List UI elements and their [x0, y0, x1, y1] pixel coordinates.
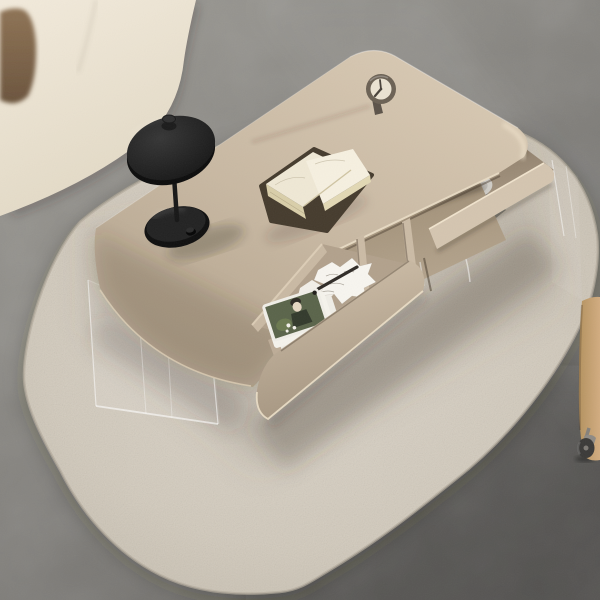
- photo-grain-overlay: [0, 0, 600, 600]
- scene-svg: [0, 0, 600, 600]
- photo-stage: [0, 0, 600, 600]
